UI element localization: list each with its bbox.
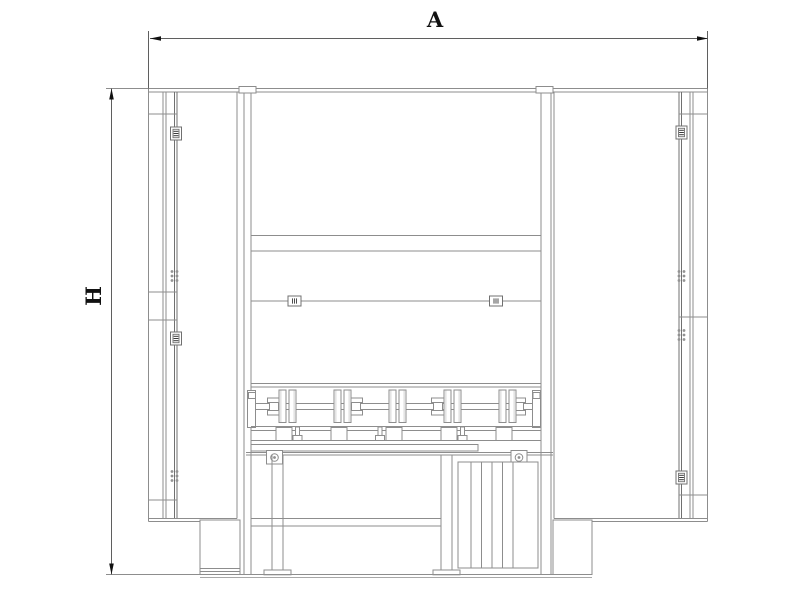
right-step-box [553,520,592,575]
roller-disc-pair [334,390,351,423]
machine-front-elevation-drawing: A H [0,0,800,600]
right-door-hinge-bottom [676,471,687,484]
right-column-cap [536,87,553,94]
right-door-hinge-top [676,126,687,139]
rail-clip [376,427,385,441]
dimension-a: A [149,7,709,89]
rail-clip [293,427,302,441]
leg-crossbar [251,519,441,527]
rail-clip [458,427,467,441]
roller-assembly [248,384,542,428]
rail-block [496,428,512,441]
arrowhead-left-icon [150,36,161,41]
roller-disc-pair [279,390,296,423]
drawing-canvas: A H [0,0,800,600]
shaft-end-detail [249,393,256,399]
rail-block [386,428,402,441]
rail-block [441,428,457,441]
roller-disc-pair [444,390,461,423]
arrowhead-bottom-icon [109,564,114,575]
shaft-collar [432,398,445,415]
dimension-a-label: A [426,7,444,32]
louver-panel [458,462,538,568]
bolt-plate [267,451,283,465]
rail-block [331,428,347,441]
seam-clip [490,296,503,306]
arrowhead-right-icon [697,36,708,41]
left-door-hinge-top [171,127,182,140]
rail-block [276,428,292,441]
center-panel [251,236,541,307]
right-cabinet [554,89,708,522]
dimension-h-label: H [81,286,106,306]
left-door-hinge-middle [171,332,182,345]
lower-guide-rail [251,427,541,441]
table-assembly [246,445,553,465]
table-bar [251,445,478,452]
shaft-end-detail [533,393,540,399]
dimension-h: H [81,89,114,575]
arrowhead-top-icon [109,89,114,100]
roller-disc-pair [499,390,516,423]
base-frame [106,455,592,578]
left-step-box [200,520,240,575]
left-cabinet [149,89,238,522]
seam-clip [288,296,301,306]
machine-body [106,87,708,578]
top-edge-band [106,89,708,93]
roller-disc-pair [389,390,406,423]
left-column-cap [239,87,256,94]
